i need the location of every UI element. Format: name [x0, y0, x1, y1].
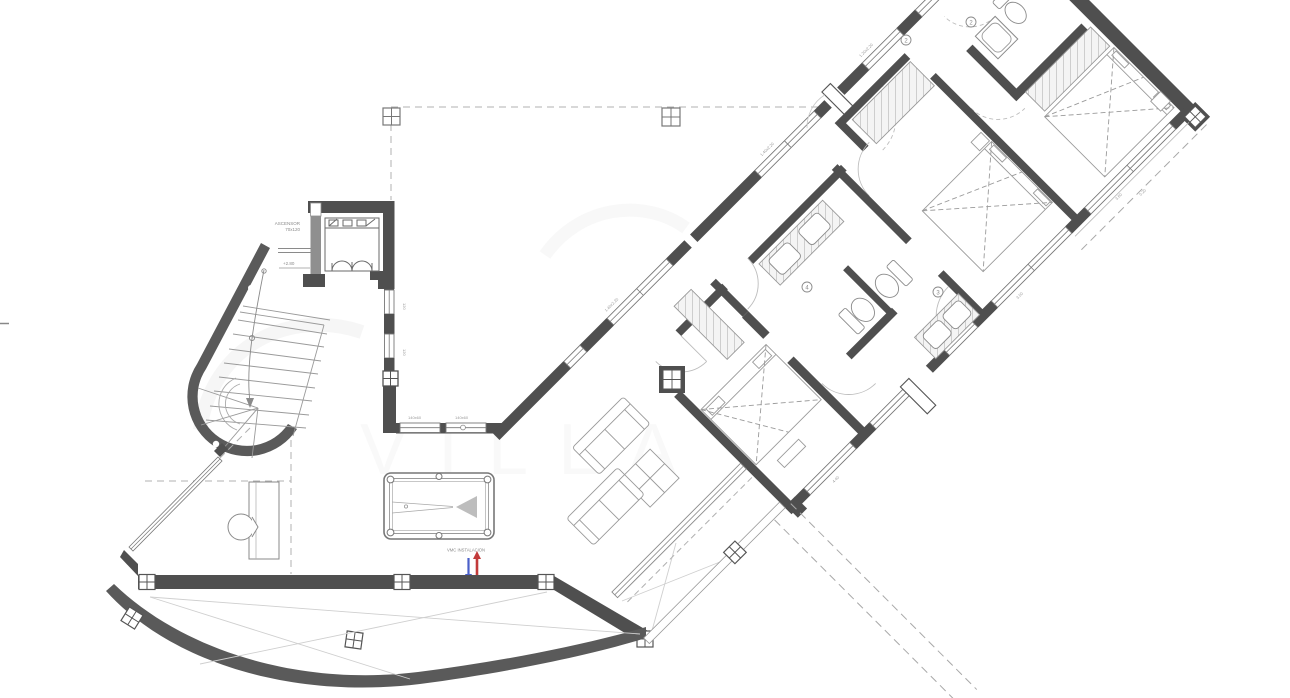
svg-text:VMC INSTALACION: VMC INSTALACION — [447, 548, 485, 553]
svg-text:140x60: 140x60 — [455, 415, 469, 420]
svg-text:120: 120 — [402, 303, 407, 310]
svg-text:+2.80: +2.80 — [283, 261, 295, 266]
svg-text:140x60: 140x60 — [408, 415, 422, 420]
svg-text:120: 120 — [402, 349, 407, 356]
svg-text:70x120: 70x120 — [285, 227, 300, 232]
svg-text:ASCENSOR: ASCENSOR — [275, 221, 301, 226]
